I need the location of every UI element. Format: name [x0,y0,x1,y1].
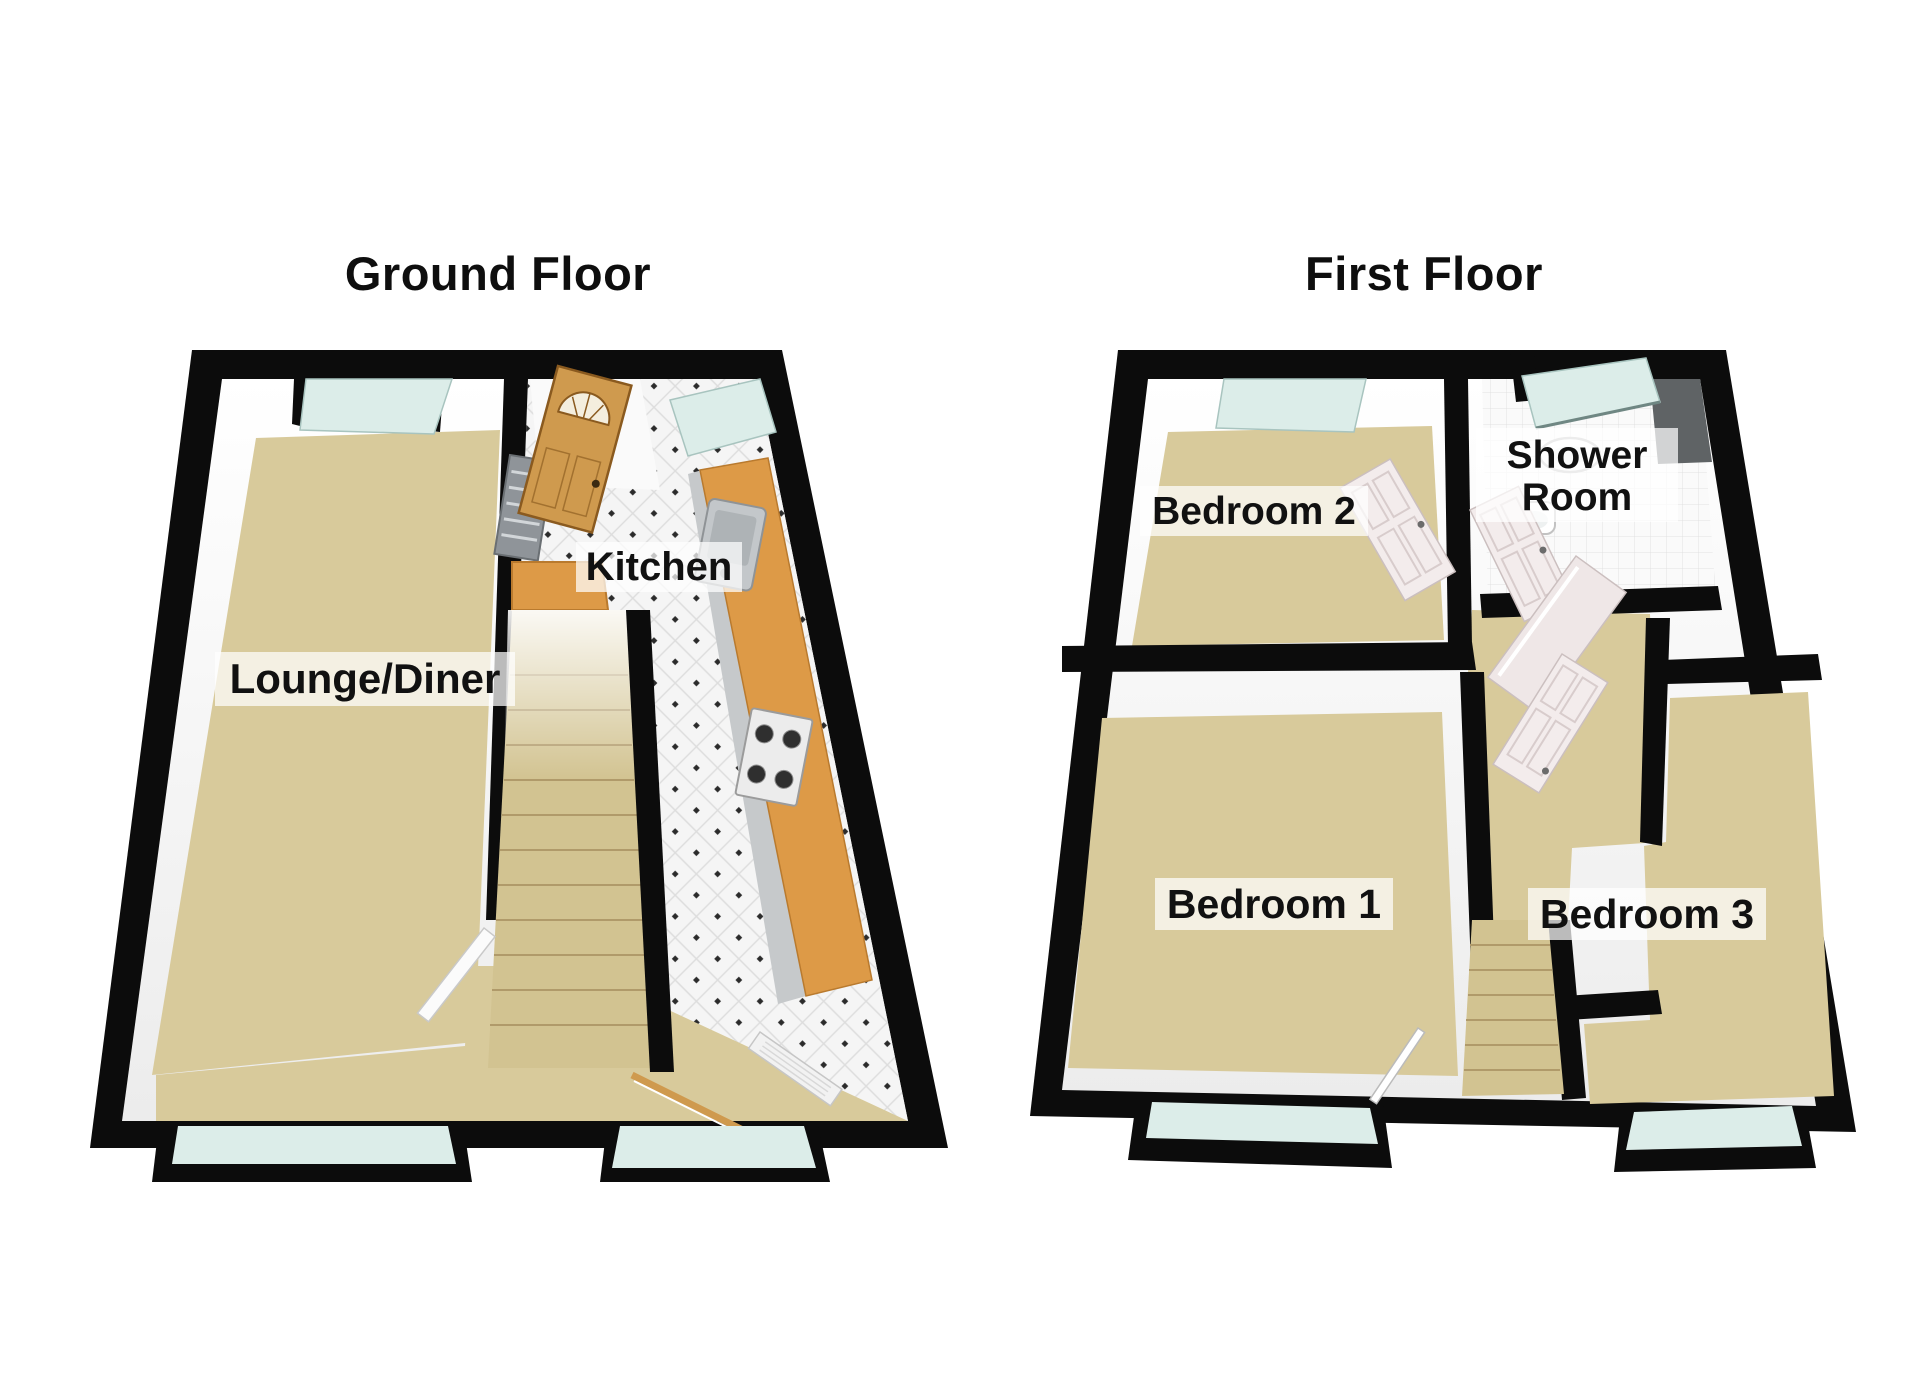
gf-staircase [488,610,674,1072]
gf-window-bottom-left [172,1126,456,1164]
wall-bed2-bed1 [1062,642,1476,672]
ff-window-bottom-left [1146,1102,1378,1144]
ff-staircase [1462,920,1564,1096]
ff-window-top-left [1216,379,1366,432]
ground-floor-plan: Lounge/Diner Kitchen [60,280,950,1210]
room-label-lounge-diner: Lounge/Diner [215,652,515,706]
shower-room-label-line2: Room [1522,476,1633,519]
wall-bed2-landing [1444,379,1472,646]
room-label-shower-room: Shower Room [1476,428,1678,522]
bedroom1-label: Bedroom 1 [1167,881,1381,927]
room-label-bedroom1: Bedroom 1 [1155,878,1393,930]
kitchen-label: Kitchen [586,545,733,589]
floorplan-canvas: Ground Floor First Floor [0,0,1920,1396]
gf-window-top-left [300,379,452,434]
bedroom2-label: Bedroom 2 [1152,490,1356,533]
bedroom3-label: Bedroom 3 [1540,891,1754,937]
gf-window-bottom-right [612,1126,816,1168]
room-label-kitchen: Kitchen [576,542,742,592]
first-floor-plan: Bedroom 2 Shower Room Bedroom 1 Bedroom … [1010,280,1900,1210]
room-label-bedroom3: Bedroom 3 [1528,888,1766,940]
gf-stair-fade [504,610,636,780]
lounge-diner-label: Lounge/Diner [230,655,501,702]
room-label-bedroom2: Bedroom 2 [1140,486,1368,536]
shower-room-label-line1: Shower [1507,434,1648,477]
ff-window-bottom-right [1626,1106,1802,1150]
